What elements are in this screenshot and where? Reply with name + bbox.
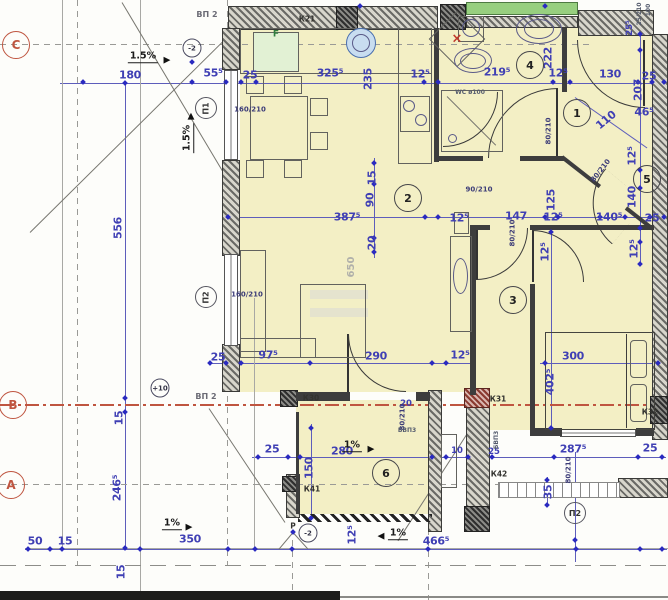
dimension-label: 12⁵ [548, 68, 567, 79]
dimension-label: 387⁵ [334, 212, 361, 223]
dimension-label: 25 [243, 70, 258, 81]
stove-symbol-icon: × [452, 33, 463, 46]
element-label: К42 [491, 470, 508, 478]
dimension-label: 556 [113, 217, 124, 239]
slope-label: 1.5% [128, 51, 158, 63]
window [560, 429, 636, 437]
dimension-label: 219⁵ [484, 67, 511, 78]
column-rc [464, 388, 490, 408]
grid-axis-bubble: B [0, 391, 27, 419]
element-label: К32 [642, 408, 659, 416]
chain-node [255, 454, 261, 460]
dimension-label: 55⁵ [203, 68, 222, 79]
dimension-label: 150 [304, 457, 315, 479]
dimension-label: 140⁵ [596, 212, 623, 223]
furniture [453, 258, 468, 294]
grid-axis-bubble-label: B [8, 398, 17, 412]
dimension-label: 15 [116, 565, 127, 580]
dimension-label: 97⁵ [258, 350, 277, 361]
grid-axis-bubble: A [0, 471, 25, 499]
dimension-label: 25 [645, 213, 660, 224]
dimension-label: 20 [367, 236, 378, 251]
furniture [352, 34, 370, 52]
furniture [284, 76, 302, 94]
slope-label: 1% [162, 518, 182, 530]
plan-line [0, 565, 668, 566]
room-number-bubble: 5 [633, 165, 661, 193]
slope-label: 1% [388, 528, 408, 540]
dimension-label: 15 [58, 536, 73, 547]
dimension-label: 25 [211, 352, 226, 363]
dimension-label: 402⁵ [545, 369, 556, 396]
dimension-label: 12⁵ [450, 350, 469, 361]
dimension-label: 290 [365, 351, 387, 362]
dimension-label: 12⁵ [347, 525, 358, 544]
element-label: Р [290, 522, 296, 530]
plan-line [125, 83, 126, 549]
exterior-wall [428, 390, 442, 532]
element-label: К41 [304, 485, 321, 493]
room-number-bubble-label: 5 [643, 173, 651, 186]
tiny-label: 100 [646, 4, 652, 17]
tiny-label: WC ø100 [455, 90, 485, 96]
furniture [310, 132, 328, 150]
note-label: ВП 2 [195, 393, 216, 401]
level-marker-bubble-label: -2 [304, 529, 312, 537]
interior-wall [562, 28, 567, 92]
dimension-label: 287⁵ [560, 444, 587, 455]
dimension-label: 235 [363, 68, 374, 90]
column [464, 506, 490, 532]
room-number-bubble-label: 3 [509, 294, 517, 307]
plan-line [77, 0, 78, 566]
furniture [300, 284, 366, 358]
fridge-label: F [273, 31, 279, 40]
grid-axis-bubble-label: C [12, 38, 21, 52]
ledge-strip [466, 2, 578, 15]
exterior-wall [222, 160, 240, 256]
level-marker-bubble: +10 [151, 379, 170, 398]
interior-wall [439, 156, 483, 161]
chain-node [635, 454, 641, 460]
room-number-bubble: 2 [394, 184, 422, 212]
furniture [246, 160, 264, 178]
dimension-label: 25⁵ [626, 20, 635, 36]
panel-marker-bubble-label: П2 [201, 291, 210, 303]
slope-label: 1% [342, 440, 362, 452]
slope-arrow-icon: ▶ [368, 446, 375, 455]
slope-label: 1.5% [182, 123, 194, 153]
door-size-label: 80/210 [546, 118, 553, 145]
dimension-label: 180 [119, 70, 141, 81]
chain-node [659, 454, 665, 460]
furniture [630, 340, 647, 378]
chain-node [551, 454, 557, 460]
level-marker-bubble-label: +10 [152, 384, 168, 392]
furniture [441, 434, 457, 488]
plan-line [340, 596, 668, 598]
furniture [415, 114, 427, 126]
note-label: ВП 2 [196, 11, 217, 19]
balcony-strip [498, 482, 620, 498]
door-size-label: 80/210 [510, 220, 517, 247]
room-number-bubble: 4 [516, 51, 544, 79]
door-size-label: 160/210 [234, 107, 266, 114]
height-note-label: 650 [347, 257, 357, 278]
room-number-bubble-label: 2 [404, 192, 412, 205]
furniture [460, 53, 486, 69]
panel-marker-bubble: П2 [195, 286, 217, 308]
chain-node [544, 502, 550, 508]
interior-wall [530, 284, 535, 430]
dimension-label: 300 [562, 351, 584, 362]
element-label: К30 [303, 394, 320, 402]
room-number-bubble: 3 [499, 286, 527, 314]
dimension-label: 466⁵ [423, 536, 450, 547]
dimension-label: 46⁵ [634, 107, 653, 118]
terrace-edge-hatch [298, 514, 432, 522]
window [224, 254, 238, 346]
furniture [448, 134, 457, 143]
grid-axis-bubble: C [2, 31, 30, 59]
plan-line [209, 408, 286, 523]
dimension-label: 12⁵ [629, 239, 640, 258]
chain-node [572, 537, 578, 543]
tiny-label: БВП3 [494, 431, 500, 449]
dimension-label: 10 [451, 447, 463, 456]
dimension-label: 15 [114, 411, 125, 426]
door-size-label: 160/210 [231, 292, 263, 299]
room-number-bubble-label: 4 [526, 59, 534, 72]
plan-line [122, 2, 229, 180]
dimension-label: 130 [599, 69, 621, 80]
dimension-label: 207 [633, 79, 644, 101]
slope-arrow-icon: ▶ [164, 57, 171, 66]
dimension-label: 12⁵ [449, 213, 468, 224]
slope-arrow-icon: ▲ [188, 113, 195, 122]
interior-wall [296, 412, 299, 514]
element-label: К21 [299, 15, 316, 23]
door-size-label: 90/210 [466, 187, 493, 194]
tiny-label: 25/210 [637, 2, 643, 25]
level-marker-bubble-label: -2 [188, 44, 196, 52]
chain-node [189, 59, 195, 65]
grid-axis-bubble-label: A [6, 478, 15, 492]
chain-node [285, 454, 291, 460]
level-marker-bubble: -2 [299, 524, 318, 543]
slope-arrow-icon: ◀ [378, 533, 385, 542]
exterior-wall [618, 478, 668, 498]
column [336, 6, 358, 30]
dimension-label: 50 [28, 536, 43, 547]
chain-node [122, 395, 128, 401]
plan-line [140, 0, 141, 600]
interior-wall [416, 392, 430, 401]
furniture [240, 250, 266, 352]
plan-line [25, 549, 667, 550]
dimension-label: 125 [546, 189, 557, 211]
furniture [626, 334, 627, 428]
dimension-label: 15 [367, 171, 378, 186]
exterior-wall [222, 28, 240, 70]
dimension-label: 325⁵ [317, 68, 344, 79]
dimension-label: 25 [643, 443, 658, 454]
panel-marker-bubble: П2 [564, 502, 586, 524]
door-size-label: 80/210 [566, 457, 573, 484]
level-marker-bubble: -2 [183, 39, 202, 58]
dimension-label: 12⁵ [410, 69, 429, 80]
furniture [630, 384, 647, 422]
exterior-wall [228, 6, 438, 30]
dimension-label: 140 [627, 186, 638, 208]
dimension-label: 90 [365, 193, 376, 208]
furniture [462, 19, 480, 37]
room-number-bubble: 1 [563, 99, 591, 127]
panel-marker-bubble-label: П1 [201, 102, 210, 114]
room-number-bubble: 6 [372, 459, 400, 487]
interior-wall [530, 225, 654, 230]
element-label: К31 [490, 395, 507, 403]
dimension-label: 12⁵ [543, 212, 562, 223]
panel-marker-bubble-label: П2 [569, 509, 581, 518]
dimension-label: 25 [265, 444, 280, 455]
room-number-bubble-label: 1 [573, 107, 581, 120]
dimension-label: 246⁵ [112, 475, 123, 502]
dimension-label: 12⁵ [540, 242, 551, 261]
tiny-label: БВП3 [398, 428, 416, 434]
dimension-label: 12⁵ [627, 146, 638, 165]
furniture [284, 160, 302, 178]
dimension-label: 350 [179, 534, 201, 545]
plan-line [0, 591, 340, 600]
furniture [403, 100, 415, 112]
furniture [524, 19, 554, 39]
room-number-bubble-label: 6 [382, 467, 390, 480]
slope-arrow-icon: ▶ [186, 524, 193, 533]
furniture [310, 98, 328, 116]
plan-line [62, 0, 63, 549]
floor-plan-canvas: ВП 21.5%▶18055⁵25325⁵12⁵219⁵12⁵13025К21F… [0, 0, 668, 600]
panel-marker-bubble: П1 [195, 97, 217, 119]
dimension-label: 222 [543, 47, 554, 69]
dimension-label: 35 [543, 485, 554, 500]
